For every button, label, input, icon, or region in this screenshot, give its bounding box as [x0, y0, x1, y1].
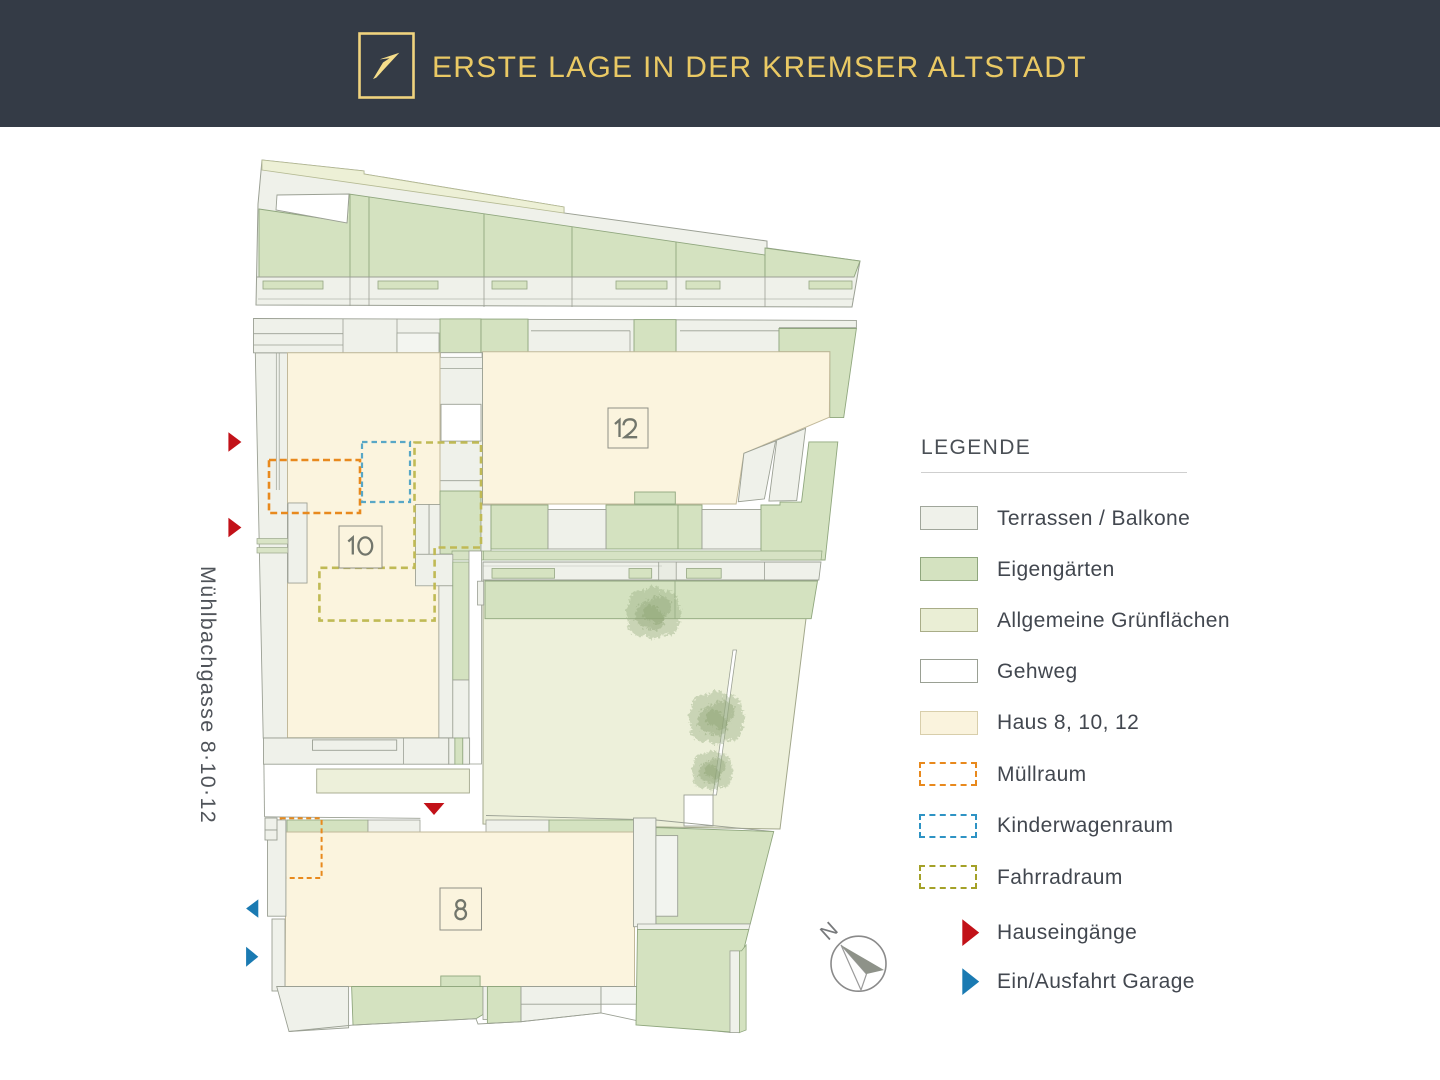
- svg-text:N: N: [816, 918, 843, 945]
